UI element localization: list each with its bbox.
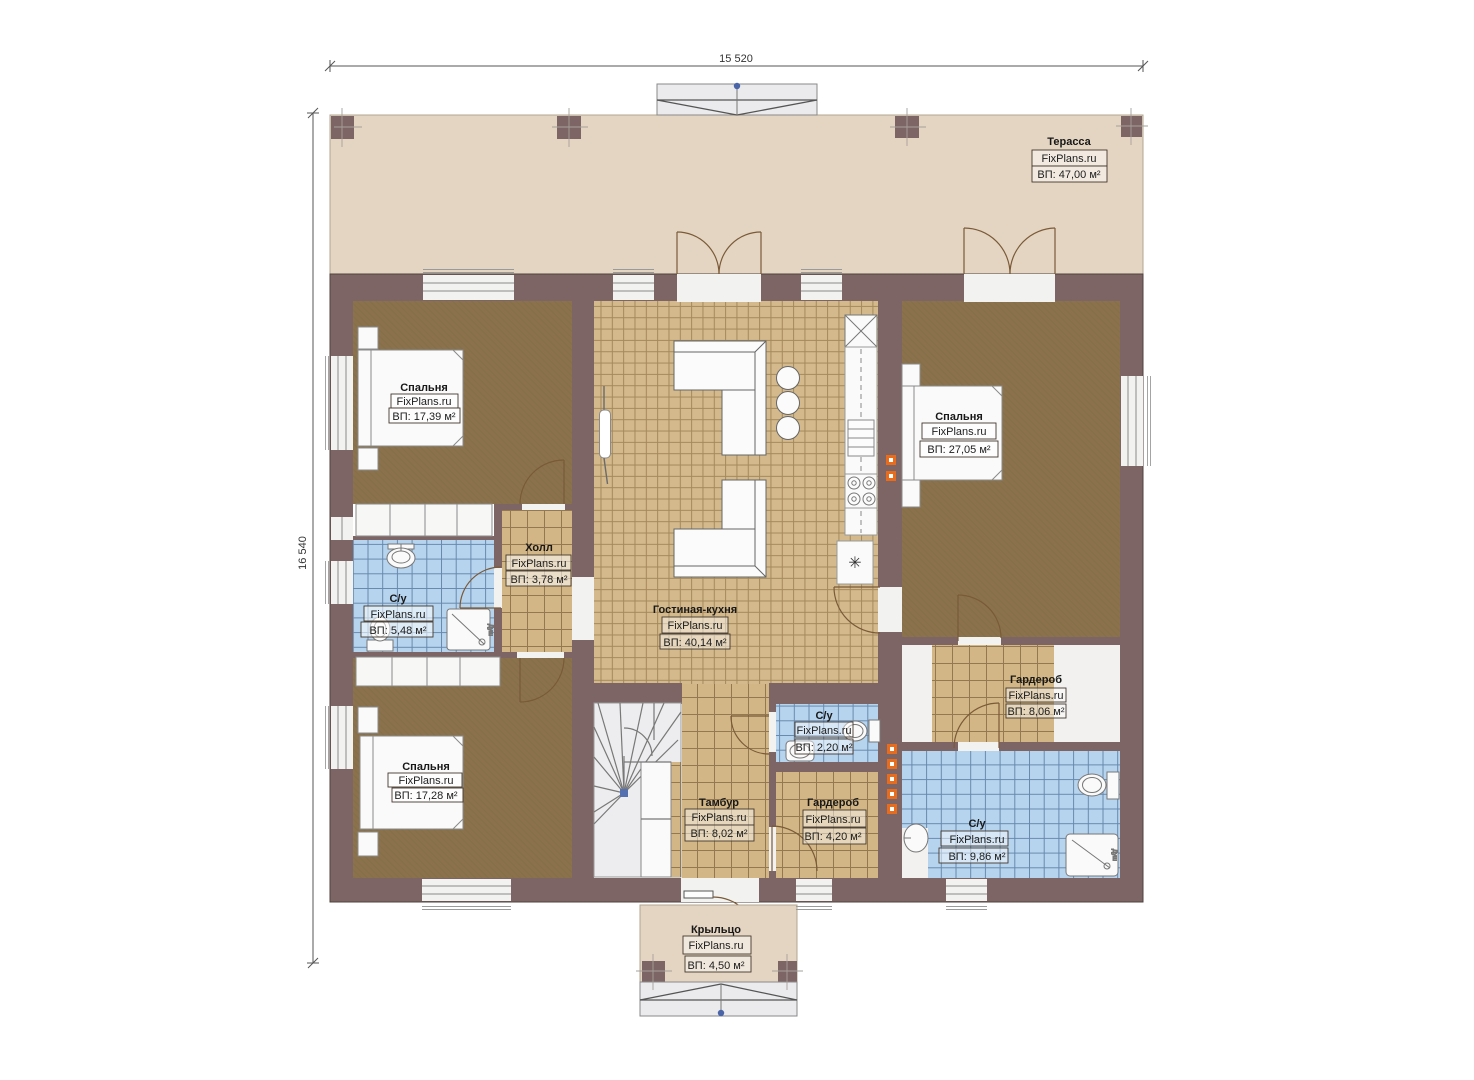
svg-text:FixPlans.ru: FixPlans.ru <box>805 814 860 826</box>
svg-text:Гардероб: Гардероб <box>807 797 859 809</box>
svg-text:ВП: 8,06 м²: ВП: 8,06 м² <box>1007 706 1064 718</box>
svg-text:ВП: 17,39 м²: ВП: 17,39 м² <box>392 411 456 423</box>
svg-text:FixPlans.ru: FixPlans.ru <box>1008 690 1063 702</box>
svg-text:Спальня: Спальня <box>402 761 450 773</box>
svg-text:ВП: 47,00 м²: ВП: 47,00 м² <box>1037 169 1101 181</box>
svg-text:ВП: 4,20 м²: ВП: 4,20 м² <box>804 831 861 843</box>
svg-text:ВП: 17,28 м²: ВП: 17,28 м² <box>394 790 458 802</box>
svg-text:✳: ✳ <box>848 555 861 572</box>
svg-text:ВП: 2,20 м²: ВП: 2,20 м² <box>795 742 852 754</box>
svg-text:ВП: 5,48 м²: ВП: 5,48 м² <box>369 625 426 637</box>
svg-text:С/у: С/у <box>815 710 833 722</box>
svg-text:Спальня: Спальня <box>400 382 448 394</box>
svg-text:Гостиная-кухня: Гостиная-кухня <box>653 604 737 616</box>
svg-text:ВП: 27,05 м²: ВП: 27,05 м² <box>927 444 991 456</box>
svg-text:ВП: 40,14 м²: ВП: 40,14 м² <box>663 637 727 649</box>
svg-text:FixPlans.ru: FixPlans.ru <box>931 426 986 438</box>
svg-text:FixPlans.ru: FixPlans.ru <box>796 725 851 737</box>
svg-text:FixPlans.ru: FixPlans.ru <box>511 558 566 570</box>
svg-text:FixPlans.ru: FixPlans.ru <box>667 620 722 632</box>
svg-text:FixPlans.ru: FixPlans.ru <box>691 812 746 824</box>
svg-text:Гардероб: Гардероб <box>1010 674 1062 686</box>
svg-text:FixPlans.ru: FixPlans.ru <box>688 940 743 952</box>
svg-text:Тамбур: Тамбур <box>699 797 739 809</box>
svg-text:Терасса: Терасса <box>1047 136 1091 148</box>
svg-text:Холл: Холл <box>525 542 553 554</box>
svg-text:15 520: 15 520 <box>719 53 753 65</box>
svg-text:Крыльцо: Крыльцо <box>691 924 741 936</box>
svg-text:С/у: С/у <box>968 818 986 830</box>
svg-text:FixPlans.ru: FixPlans.ru <box>949 834 1004 846</box>
svg-text:ВП: 4,50 м²: ВП: 4,50 м² <box>687 960 744 972</box>
svg-text:ВП: 9,86 м²: ВП: 9,86 м² <box>948 851 1005 863</box>
svg-text:FixPlans.ru: FixPlans.ru <box>1041 153 1096 165</box>
svg-text:FixPlans.ru: FixPlans.ru <box>396 396 451 408</box>
svg-text:16 540: 16 540 <box>297 536 309 570</box>
svg-text:Душ: Душ <box>487 624 493 636</box>
svg-text:FixPlans.ru: FixPlans.ru <box>370 609 425 621</box>
svg-text:С/у: С/у <box>389 593 407 605</box>
svg-text:FixPlans.ru: FixPlans.ru <box>398 775 453 787</box>
svg-text:Спальня: Спальня <box>935 411 983 423</box>
svg-text:ВП: 3,78 м²: ВП: 3,78 м² <box>510 574 567 586</box>
svg-text:Душ: Душ <box>1111 849 1117 861</box>
svg-text:ВП: 8,02 м²: ВП: 8,02 м² <box>690 828 747 840</box>
